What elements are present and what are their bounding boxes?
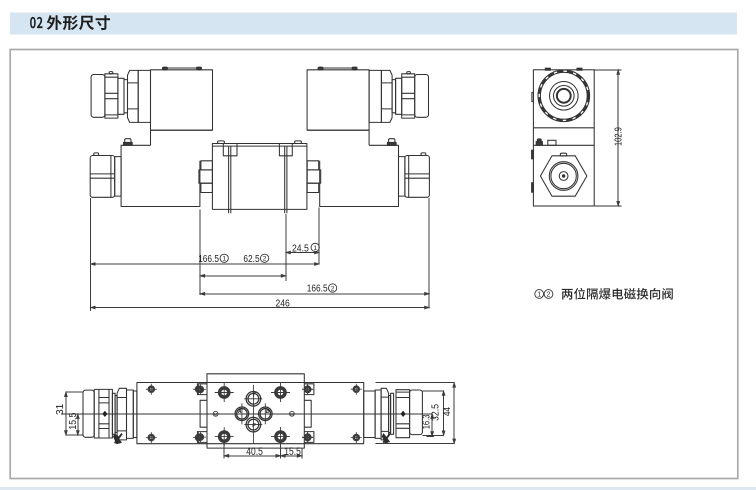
svg-text:M: M xyxy=(214,413,217,417)
svg-text:2: 2 xyxy=(263,256,267,263)
svg-text:32.5: 32.5 xyxy=(431,404,442,421)
svg-text:62.5: 62.5 xyxy=(243,254,260,265)
svg-text:M: M xyxy=(290,413,293,417)
svg-text:B: B xyxy=(266,409,270,415)
svg-text:246: 246 xyxy=(276,298,291,309)
svg-text:102.9: 102.9 xyxy=(613,127,625,146)
svg-text:2: 2 xyxy=(547,291,551,298)
svg-text:A: A xyxy=(237,409,242,415)
svg-text:40.5: 40.5 xyxy=(246,446,262,458)
svg-text:166.5: 166.5 xyxy=(307,284,328,295)
svg-text:24.5: 24.5 xyxy=(292,244,309,255)
svg-text:1: 1 xyxy=(222,256,226,263)
svg-text:P: P xyxy=(252,423,256,429)
svg-text:166.5: 166.5 xyxy=(198,254,219,265)
svg-text:31: 31 xyxy=(55,403,66,415)
svg-text:1: 1 xyxy=(313,245,317,252)
svg-text:15.5: 15.5 xyxy=(284,446,301,458)
svg-text:2: 2 xyxy=(331,285,335,292)
svg-text:1: 1 xyxy=(537,291,541,298)
svg-text:15.5: 15.5 xyxy=(68,412,79,429)
svg-text:44: 44 xyxy=(442,407,453,416)
